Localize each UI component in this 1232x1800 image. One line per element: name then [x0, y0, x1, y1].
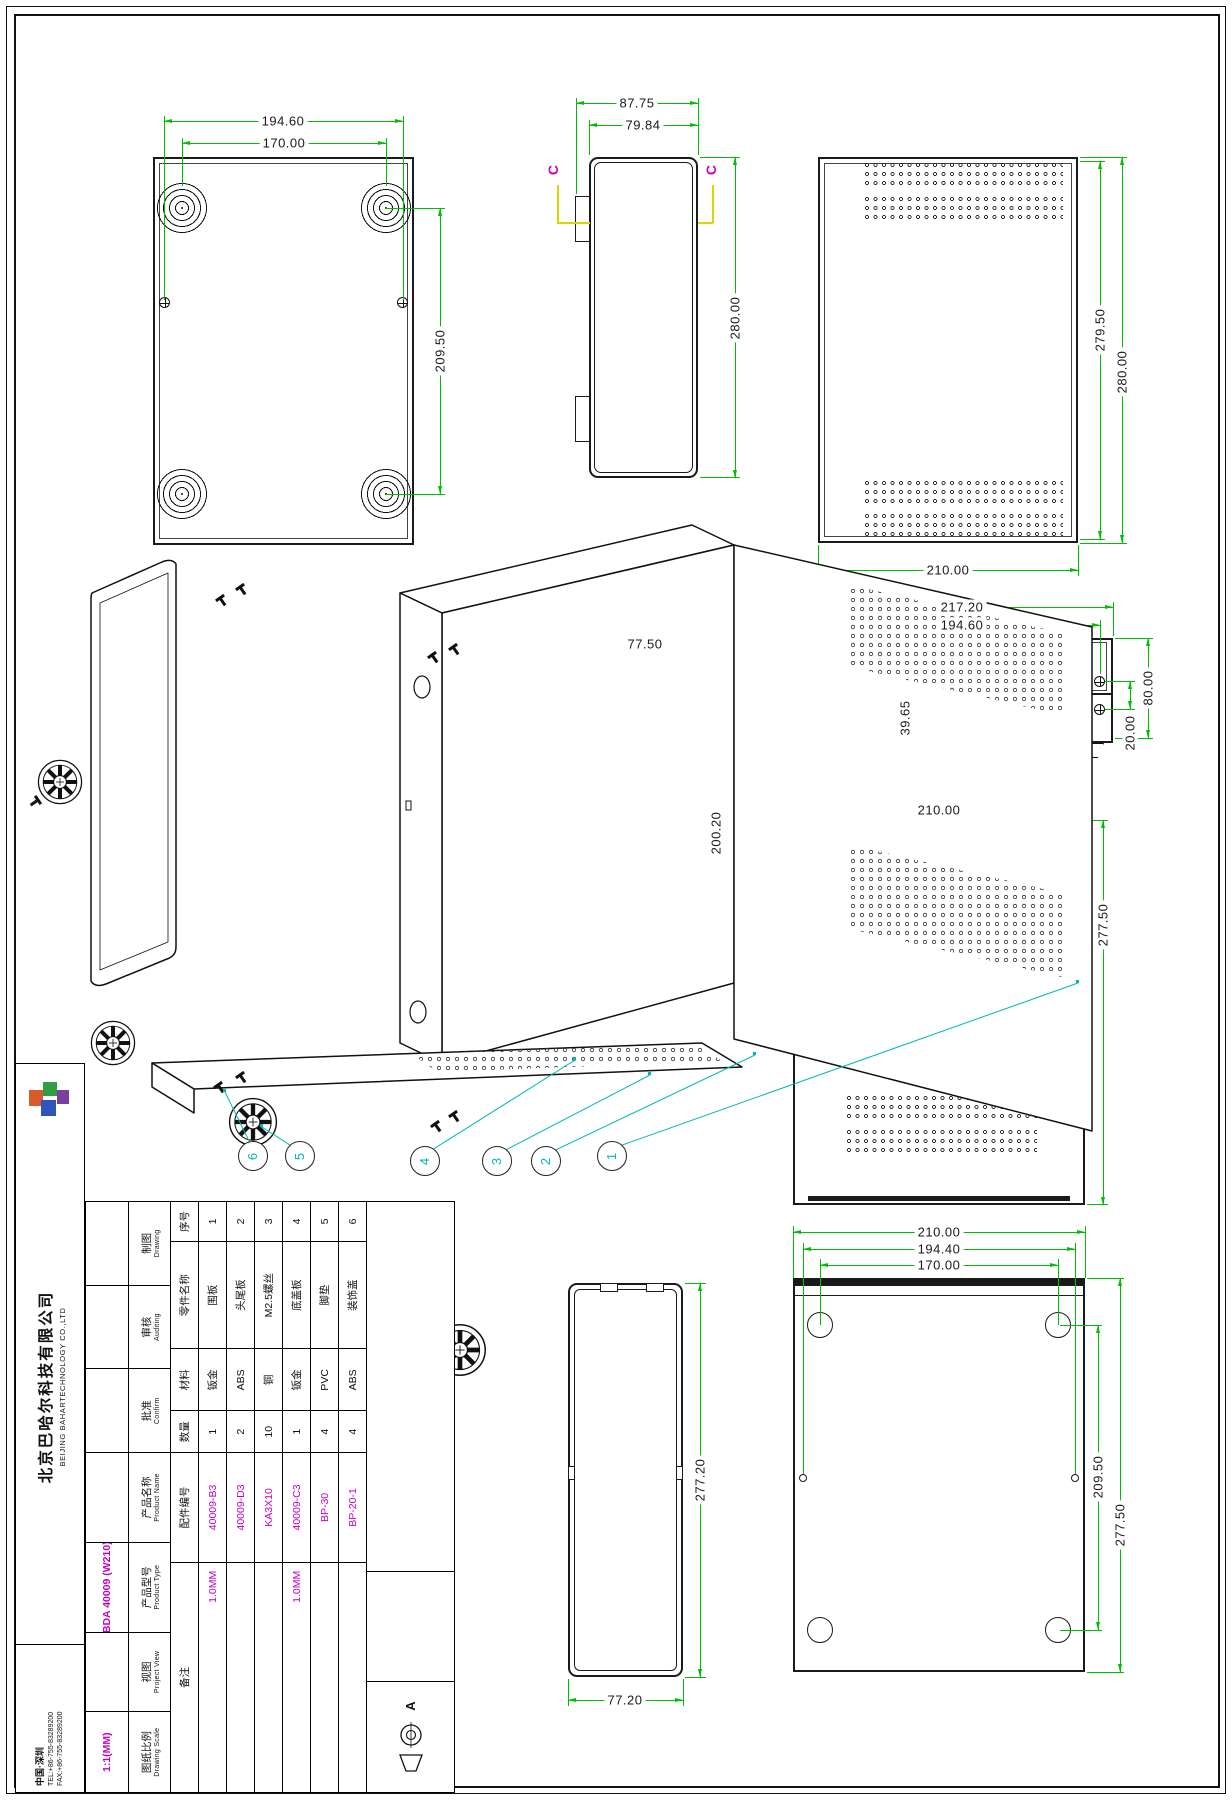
- dim-label: 87.75: [616, 96, 657, 111]
- header-product-type: 产品型号 Product Type: [129, 1543, 170, 1633]
- bom-remark: [227, 1563, 254, 1792]
- bom-part-no: KA3X10: [255, 1453, 282, 1563]
- bom-material: 铜: [255, 1349, 282, 1411]
- header-drawing-scale: 图纸比例 Drawing Scale: [129, 1712, 170, 1792]
- rubber-foot-icon: [156, 468, 208, 520]
- balloon-1: 1: [597, 1141, 627, 1171]
- dim-label: 200.20: [709, 809, 724, 858]
- cover-small-hole: [799, 1474, 807, 1482]
- balloon-number: 2: [538, 1157, 553, 1164]
- label-cn: 审核: [139, 1317, 154, 1338]
- bom-no: 1: [199, 1202, 226, 1242]
- ext-line: [698, 98, 699, 155]
- company-name-en: BEIJING BAHARTECHNOLOGY CO.,LTD: [58, 1307, 67, 1466]
- front-panel-notch: [600, 1283, 618, 1292]
- bom-header-name: 零件名称: [171, 1242, 198, 1350]
- label-cn: 制图: [139, 1233, 154, 1254]
- ext-line: [386, 494, 445, 495]
- bom-no: 4: [283, 1202, 310, 1242]
- dim-label: 170.00: [915, 1258, 964, 1273]
- ext-line: [1100, 620, 1101, 674]
- vent-holes: [863, 479, 1063, 506]
- dim-label: 194.40: [915, 1242, 964, 1257]
- cover-top-line: [795, 1295, 1083, 1296]
- title-block: 北京巴哈尔科技有限公司 BEIJING BAHARTECHNOLOGY CO.,…: [15, 1063, 455, 1793]
- dim-label: 277.50: [1096, 901, 1111, 950]
- ext-line: [820, 1259, 821, 1325]
- dim-label: 194.60: [938, 618, 987, 633]
- bom-row: 4 底盖板 钣金 1 40009-C3 1.0MM: [283, 1201, 311, 1793]
- bom-row: 5 脚垫 PVC 4 BP-30: [311, 1201, 339, 1793]
- dim-label: 277.20: [693, 1456, 708, 1505]
- misc-row: A: [367, 1201, 455, 1793]
- bom-remark: [339, 1563, 366, 1792]
- vent-holes: [863, 161, 1063, 188]
- bom-material: ABS: [339, 1349, 366, 1411]
- ext-line: [1087, 1204, 1108, 1205]
- balloon-3: 3: [482, 1146, 512, 1176]
- projection-cell: A: [367, 1682, 454, 1792]
- bom-no: 2: [227, 1202, 254, 1242]
- label-cn: 产品名称: [139, 1477, 154, 1519]
- dim-line: [1130, 681, 1131, 709]
- balloon-6: 6: [238, 1141, 268, 1171]
- company-names: 北京巴哈尔科技有限公司 BEIJING BAHARTECHNOLOGY CO.,…: [34, 1130, 67, 1644]
- balloon-number: 6: [245, 1152, 260, 1159]
- bom-header-part-no: 配件编号: [171, 1453, 198, 1563]
- bom-qty: 4: [311, 1411, 338, 1453]
- bom-name: 底盖板: [283, 1242, 310, 1350]
- label-cn: 视图: [139, 1661, 154, 1682]
- ext-line: [1058, 1259, 1059, 1325]
- section-line: [712, 185, 714, 223]
- side-view-tab: [575, 396, 590, 442]
- cover-view-outline: [793, 1278, 1085, 1672]
- front-panel-side-notch: [568, 1466, 575, 1480]
- bom-name: M2.5螺丝: [255, 1242, 282, 1350]
- ext-line: [685, 1283, 706, 1284]
- section-line: [557, 185, 559, 223]
- balloon-number: 3: [489, 1157, 504, 1164]
- header-confirm: 批准 Confirm: [129, 1369, 170, 1453]
- section-marker-c: C: [703, 165, 719, 175]
- bom-qty: 1: [283, 1411, 310, 1453]
- product-name-value: [86, 1453, 128, 1543]
- drawing-sheet: 194.60 170.00 209.50 C C 87.75 79.84 280…: [0, 0, 1232, 1800]
- ext-line: [182, 138, 183, 186]
- balloon-number: 5: [292, 1152, 307, 1159]
- bom-part-no: 40009-B3: [199, 1453, 226, 1563]
- cover-hole: [807, 1617, 833, 1643]
- ext-line: [1113, 602, 1114, 636]
- header-row: 制图 Drawing 审核 Auditing 批准 Confirm 产品名称 P…: [129, 1201, 171, 1793]
- header-product-name: 产品名称 Product Name: [129, 1453, 170, 1543]
- ext-line: [568, 1679, 569, 1706]
- product-type-value: BDA 40009 (W210): [86, 1543, 128, 1633]
- bom-header-qty: 数量: [171, 1411, 198, 1453]
- side-view-tab: [575, 196, 590, 242]
- bom-remark: [255, 1563, 282, 1792]
- ext-line: [803, 1243, 804, 1474]
- bom-material: 钣金: [283, 1349, 310, 1411]
- bom-qty: 10: [255, 1411, 282, 1453]
- balloon-5: 5: [285, 1141, 315, 1171]
- ext-line: [386, 138, 387, 186]
- label-cn: 产品型号: [139, 1566, 154, 1608]
- dim-label: 170.00: [260, 136, 309, 151]
- dim-label: 39.65: [898, 697, 913, 738]
- balloon-number: 1: [604, 1152, 619, 1159]
- balloon-number: 4: [417, 1157, 432, 1164]
- header-auditing: 审核 Auditing: [129, 1286, 170, 1370]
- dim-line: [1103, 820, 1104, 1205]
- bom-row: 1 围板 钣金 1 40009-B3 1.0MM: [199, 1201, 227, 1793]
- drawing-signature: [86, 1202, 128, 1286]
- bom-qty: 4: [339, 1411, 366, 1453]
- balloon-2: 2: [531, 1146, 561, 1176]
- bom-material: ABS: [227, 1349, 254, 1411]
- bom-name: 头尾板: [227, 1242, 254, 1350]
- label-en: Confirm: [154, 1398, 161, 1425]
- label-en: Drawing Scale: [154, 1728, 161, 1777]
- auditing-signature: [86, 1286, 128, 1370]
- company-fax: FAX:+86-755-83289200: [56, 1711, 65, 1786]
- cover-top-bar: [795, 1280, 1083, 1286]
- header-drawing: 制图 Drawing: [129, 1202, 170, 1286]
- company-contact: 中国·深圳 TEL:+86-755-83289200 FAX:+86-755-8…: [16, 1644, 84, 1792]
- bom-part-no: 40009-C3: [283, 1453, 310, 1563]
- dim-label: 210.00: [915, 803, 964, 818]
- bom-row: 6 装饰盖 ABS 4 BP-20-1: [339, 1201, 367, 1793]
- dim-label: 217.20: [938, 600, 987, 615]
- dim-label: 77.50: [624, 637, 665, 652]
- section-marker-c: C: [545, 165, 561, 175]
- label-en: Auditing: [154, 1313, 161, 1341]
- panel-bottom-bar: [808, 1196, 1070, 1201]
- ext-line: [386, 208, 445, 209]
- bom-part-no: BP-30: [311, 1453, 338, 1563]
- bom-no: 5: [311, 1202, 338, 1242]
- bom-no: 6: [339, 1202, 366, 1242]
- bom-part-no: 40009-D3: [227, 1453, 254, 1563]
- bom-header-no: 序号: [171, 1202, 198, 1242]
- ext-line: [1075, 1243, 1076, 1474]
- company-tel: TEL:+86-755-83289200: [47, 1712, 56, 1786]
- ext-line: [685, 1677, 706, 1678]
- company-block: 北京巴哈尔科技有限公司 BEIJING BAHARTECHNOLOGY CO.,…: [15, 1063, 85, 1793]
- misc-empty: [367, 1202, 454, 1572]
- dim-label: 280.00: [728, 294, 743, 343]
- dim-label: 77.20: [604, 1693, 645, 1708]
- label-cn: 图纸比例: [139, 1731, 154, 1773]
- projection-symbol-icon: [398, 1719, 424, 1773]
- dim-line: [1120, 1278, 1121, 1672]
- confirm-signature: [86, 1369, 128, 1453]
- bom-row: 3 M2.5螺丝 铜 10 KA3X10: [255, 1201, 283, 1793]
- ext-line: [576, 98, 577, 194]
- dim-label: 209.50: [433, 327, 448, 376]
- bom-name: 围板: [199, 1242, 226, 1350]
- remark-area: [367, 1572, 454, 1682]
- dim-label: 277.50: [1113, 1501, 1128, 1550]
- drawing-scale-value: 1:1(MM): [86, 1712, 128, 1792]
- dim-label: 210.00: [924, 563, 973, 578]
- dim-label: 210.00: [915, 1225, 964, 1240]
- front-panel-inner-line: [574, 1289, 677, 1671]
- header-project-view: 视图 Project View: [129, 1633, 170, 1713]
- project-view-value: [86, 1633, 128, 1713]
- dim-label: 194.60: [259, 114, 308, 129]
- revision-letter: A: [403, 1701, 418, 1710]
- ext-line: [1105, 709, 1135, 710]
- bom-remark: 1.0MM: [283, 1563, 310, 1792]
- dim-label: 209.50: [1091, 1453, 1106, 1502]
- label-en: Drawing: [154, 1229, 161, 1257]
- bom-qty: 1: [199, 1411, 226, 1453]
- bom-material: 钣金: [199, 1349, 226, 1411]
- balloon-4: 4: [410, 1146, 440, 1176]
- bom-name: 脚垫: [311, 1242, 338, 1350]
- ext-line: [793, 1226, 794, 1278]
- vent-holes: [863, 195, 1063, 222]
- bom-material: PVC: [311, 1349, 338, 1411]
- bom-row: 2 头尾板 ABS 2 40009-D3: [227, 1201, 255, 1793]
- label-en: Product Name: [154, 1473, 161, 1521]
- dim-label: 80.00: [1141, 667, 1156, 708]
- front-panel-notch: [646, 1283, 664, 1292]
- ext-line: [1087, 1672, 1124, 1673]
- ext-line: [1085, 1226, 1086, 1278]
- bom-qty: 2: [227, 1411, 254, 1453]
- ext-line: [1060, 1630, 1102, 1631]
- bom-header-remark: 备注: [171, 1563, 198, 1792]
- bom-part-no: BP-20-1: [339, 1453, 366, 1563]
- dim-label: 280.00: [1115, 348, 1130, 397]
- company-logo-icon: [27, 1074, 73, 1120]
- ext-line: [683, 1679, 684, 1706]
- bom-no: 3: [255, 1202, 282, 1242]
- section-line: [557, 222, 590, 224]
- ext-line: [164, 116, 165, 300]
- cover-small-hole: [1071, 1474, 1079, 1482]
- section-line: [698, 222, 713, 224]
- front-panel-side-notch: [676, 1466, 683, 1480]
- label-en: Product Type: [154, 1565, 161, 1610]
- bom-remark: [311, 1563, 338, 1792]
- side-view-inner-line: [594, 162, 693, 473]
- label-en: Project View: [154, 1651, 161, 1693]
- company-name-cn: 北京巴哈尔科技有限公司: [34, 1291, 56, 1484]
- bom-remark: 1.0MM: [199, 1563, 226, 1792]
- label-cn: 批准: [139, 1400, 154, 1421]
- values-row: BDA 40009 (W210) 1:1(MM): [85, 1201, 129, 1793]
- bom-header-material: 材料: [171, 1350, 198, 1412]
- dim-label: 20.00: [1123, 712, 1138, 753]
- bom-name: 装饰盖: [339, 1242, 366, 1350]
- dim-label: 279.50: [1093, 306, 1108, 355]
- company-location: 中国·深圳: [36, 1747, 45, 1786]
- dim-label: 79.84: [622, 118, 663, 133]
- bom-header-row: 序号 零件名称 材料 数量 配件编号 备注: [171, 1201, 199, 1793]
